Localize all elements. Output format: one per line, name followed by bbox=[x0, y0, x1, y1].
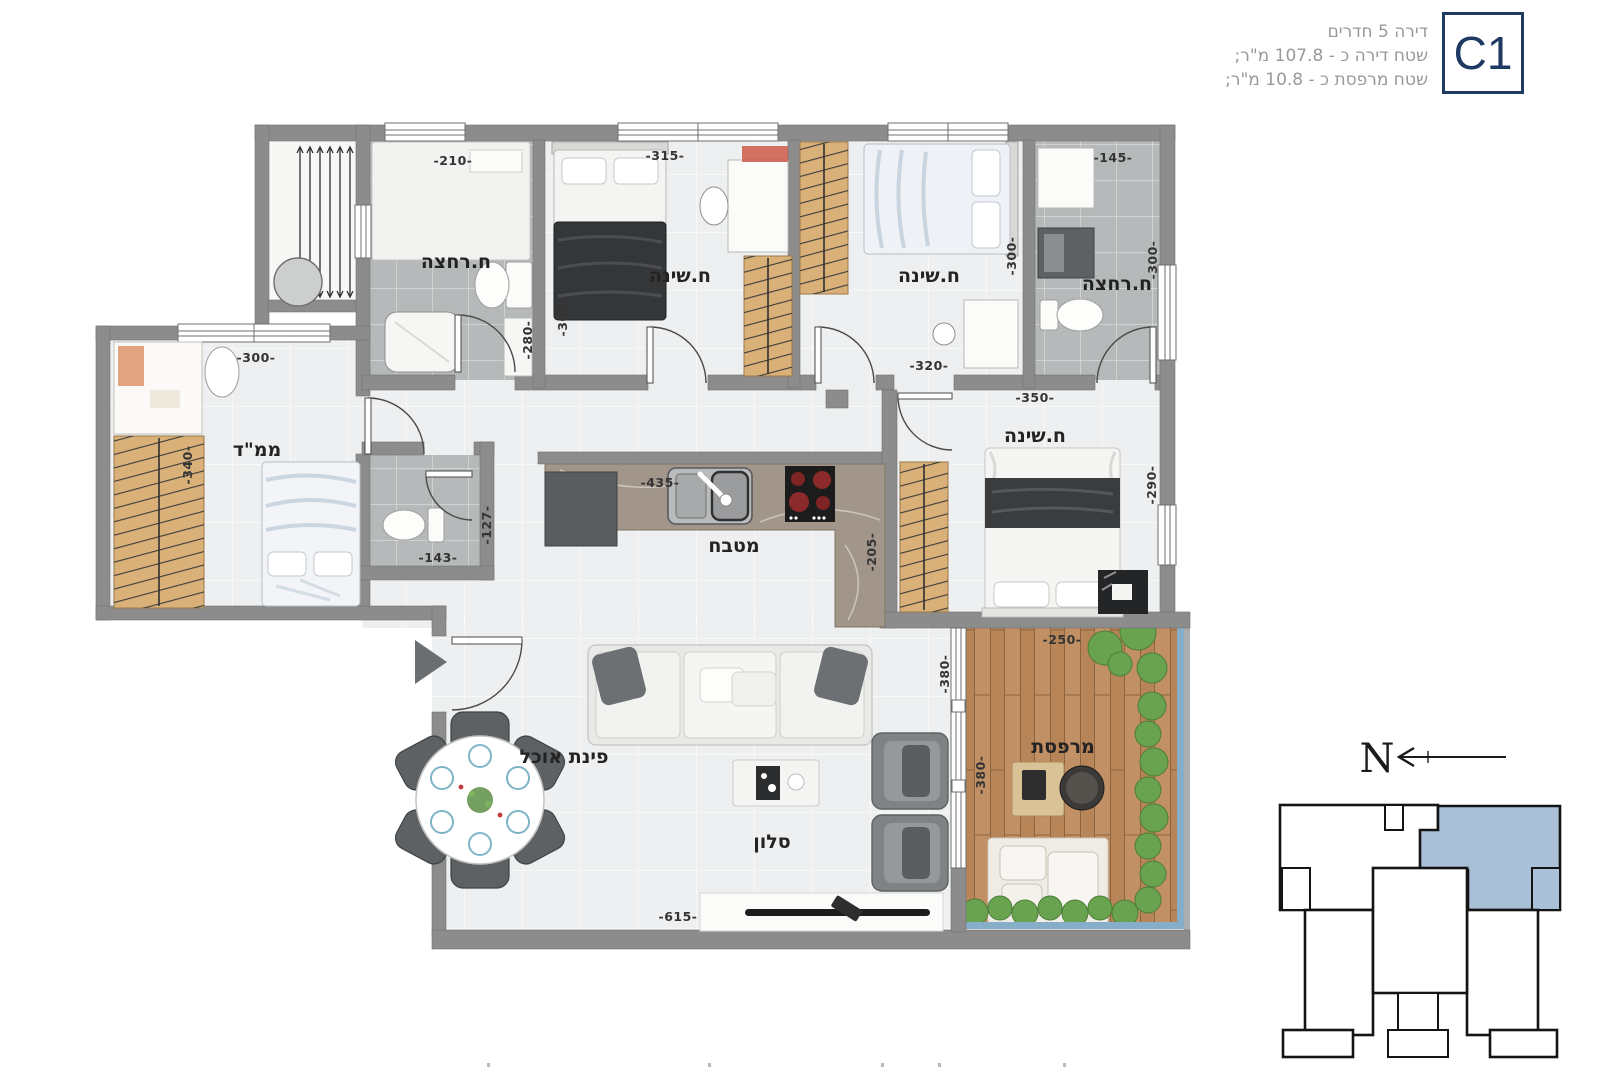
dim-wc-w: -143- bbox=[419, 550, 458, 565]
window-master-right bbox=[1158, 505, 1176, 565]
room-label-mamad: ממ"ד bbox=[233, 439, 282, 461]
window-mamad-top bbox=[178, 324, 330, 342]
bottom-crop-marks bbox=[487, 1063, 1066, 1067]
balcony-trim bbox=[1184, 628, 1190, 934]
dim-mamad-w: -300- bbox=[237, 350, 276, 365]
toilet-icon bbox=[383, 508, 444, 542]
chair-icon bbox=[700, 187, 728, 225]
balcony bbox=[958, 614, 1190, 934]
balcony-sliding-door bbox=[951, 628, 966, 868]
room-label-bed1: ח.שינה bbox=[649, 265, 711, 287]
dim-bath2-w: -145- bbox=[1094, 150, 1133, 165]
dim-bed2-h: -300- bbox=[1004, 237, 1019, 276]
sink-icon bbox=[668, 468, 752, 524]
floorplan-drawing: ח.רחצה ח.שינה ח.שינה ח.רחצה ממ"ד מטבח ח.… bbox=[0, 0, 1600, 1067]
window-service-side bbox=[355, 205, 371, 258]
sofa-icon bbox=[588, 645, 872, 745]
window-bath2-right bbox=[1158, 265, 1176, 360]
bed-single-icon bbox=[864, 142, 1018, 256]
dim-bed1-w: -315- bbox=[646, 148, 685, 163]
dim-bed2-w: -320- bbox=[910, 358, 949, 373]
dim-balcony-h: -380- bbox=[973, 756, 988, 795]
wardrobe-icon bbox=[800, 142, 848, 294]
wardrobe-icon bbox=[744, 256, 792, 376]
coffee-table-icon bbox=[733, 760, 819, 806]
room-label-kitchen: מטבח bbox=[708, 535, 759, 557]
window-bed2-top bbox=[888, 123, 1008, 141]
armchair-icon bbox=[872, 815, 948, 891]
wc-fixtures bbox=[383, 508, 444, 542]
balcony-railing-bottom bbox=[958, 922, 1184, 929]
dim-bed1-h: -300- bbox=[555, 298, 570, 337]
room-label-bed2: ח.שינה bbox=[898, 265, 960, 287]
cooktop-icon bbox=[785, 466, 835, 522]
boiler-icon bbox=[274, 258, 322, 306]
wardrobe-icon bbox=[900, 462, 948, 612]
bed-single-icon bbox=[262, 462, 360, 606]
room-label-dining: פינת אוכל bbox=[520, 746, 609, 768]
balcony-railing-right bbox=[1177, 628, 1184, 928]
armchair-icon bbox=[872, 733, 948, 809]
dim-living-w: -615- bbox=[659, 909, 698, 924]
room-label-bath1: ח.רחצה bbox=[421, 251, 491, 273]
tv-console-icon bbox=[700, 893, 943, 931]
window-bath1-top bbox=[385, 123, 465, 141]
dim-bath1-w: -210- bbox=[434, 153, 473, 168]
keyplan bbox=[1280, 805, 1560, 1057]
dim-mamad-h: -340- bbox=[180, 446, 195, 485]
dim-balcony-w: -250- bbox=[1043, 632, 1082, 647]
desk-dark-icon bbox=[1098, 570, 1148, 614]
room-label-bath2: ח.רחצה bbox=[1082, 273, 1152, 295]
bed-single-icon bbox=[552, 142, 668, 320]
keyplan-core bbox=[1373, 868, 1467, 993]
dim-kitchen-h: -205- bbox=[864, 533, 879, 572]
room-label-balcony: מרפסת bbox=[1031, 736, 1095, 758]
toilet-icon bbox=[1040, 299, 1103, 331]
seat-icon bbox=[205, 347, 239, 397]
dim-master-w: -350- bbox=[1016, 390, 1055, 405]
window-bed1-top bbox=[618, 123, 778, 141]
dim-bath2-h: -300- bbox=[1145, 241, 1160, 280]
dim-wc-h: -127- bbox=[479, 506, 494, 545]
dim-hall-h: -280- bbox=[520, 321, 535, 360]
room-label-living: סלון bbox=[753, 831, 790, 853]
north-arrow: N bbox=[1360, 736, 1507, 782]
vanity-icon bbox=[1038, 148, 1094, 208]
cabinet-icon bbox=[545, 472, 617, 546]
dim-kitchen-w: -435- bbox=[641, 475, 680, 490]
floorplan-page: דירה 5 חדרים שטח דירה כ - 107.8 מ"ר; שטח… bbox=[0, 0, 1600, 1067]
dim-living-h: -380- bbox=[937, 655, 952, 694]
bathroom2-fixtures bbox=[1038, 148, 1103, 331]
dim-master-h: -290- bbox=[1144, 466, 1159, 505]
north-label: N bbox=[1360, 736, 1395, 782]
master-furniture bbox=[900, 448, 1148, 617]
room-label-master: ח.שינה bbox=[1004, 425, 1066, 447]
